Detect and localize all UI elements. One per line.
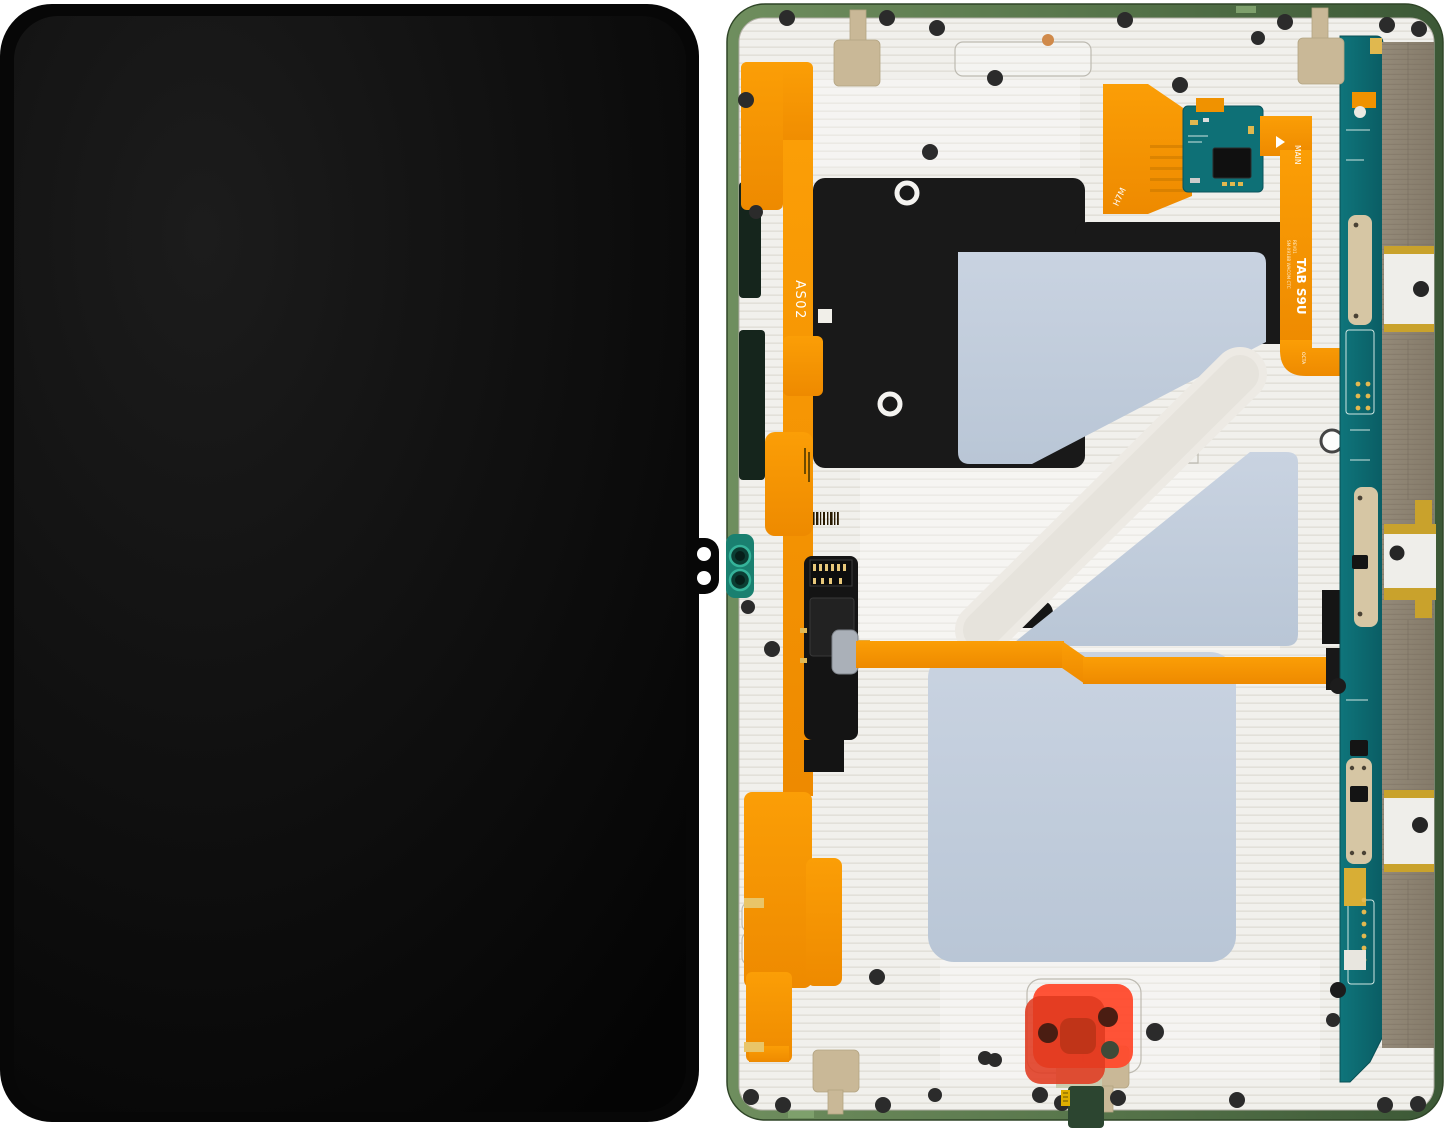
small-ic	[1350, 740, 1368, 756]
camera-tab	[686, 538, 719, 594]
controller-ic	[1213, 148, 1251, 178]
photo-canvas: AS02	[0, 0, 1445, 1128]
coil-connector	[1061, 1090, 1070, 1106]
frame-tab	[788, 1110, 814, 1118]
small-ic	[1352, 555, 1368, 569]
pcb-hole	[1354, 106, 1366, 118]
pcb-label	[1344, 950, 1366, 970]
thermal-pad-lower	[928, 652, 1236, 962]
contact	[800, 628, 807, 633]
pcb-contact	[1370, 38, 1382, 54]
sticker-overlap	[1060, 1018, 1096, 1054]
sticker-hole	[1101, 1041, 1119, 1059]
screen-glass	[14, 16, 686, 1112]
tab-s9u-label: TAB S9U	[1294, 258, 1308, 315]
pcb-connector-pad	[1348, 215, 1372, 325]
sticker-hole	[1098, 1007, 1118, 1027]
pcb-connector	[1352, 92, 1376, 108]
as02-label: AS02	[792, 280, 807, 320]
tablet-front-screen	[0, 4, 719, 1122]
contact	[800, 658, 807, 663]
adhesive-dot	[1390, 546, 1405, 561]
model-detail-line1: SM-X918B WACOM CTC	[1286, 240, 1291, 289]
model-detail-line2: REV01	[1292, 240, 1297, 254]
adhesive-dot	[1326, 1013, 1340, 1027]
sticker-hole	[1038, 1023, 1058, 1043]
camera-hole-top	[697, 547, 711, 561]
camera-bracket	[726, 534, 754, 598]
adhesive-dot	[1412, 817, 1428, 833]
tablet-display-assembly-photo: AS02	[0, 0, 1445, 1128]
shield-cutout-3	[1384, 790, 1434, 872]
pcb-connector-pad	[1346, 758, 1372, 864]
display-assembly-back: AS02	[726, 4, 1443, 1128]
frame-tab	[1236, 6, 1256, 13]
shield-cutout-1	[1384, 246, 1434, 332]
adhesive-dot-tan	[1042, 34, 1054, 46]
etch-rect	[955, 42, 1091, 76]
adhesive-dot	[1413, 281, 1429, 297]
braid-connector	[832, 630, 858, 674]
octa-label: OCTA	[1300, 352, 1306, 365]
shield-tape-column	[1382, 42, 1436, 1048]
pcb-edge-bumper	[1330, 678, 1346, 694]
pcb-edge-bumper	[1330, 982, 1346, 998]
camera-hole-bottom	[697, 571, 711, 585]
main-label: MAIN	[1293, 145, 1302, 164]
pcb-top-connector	[1196, 98, 1224, 112]
small-ic	[1350, 786, 1368, 802]
white-square-mark	[818, 309, 832, 323]
graphite-sheet-left-strip	[739, 330, 765, 480]
